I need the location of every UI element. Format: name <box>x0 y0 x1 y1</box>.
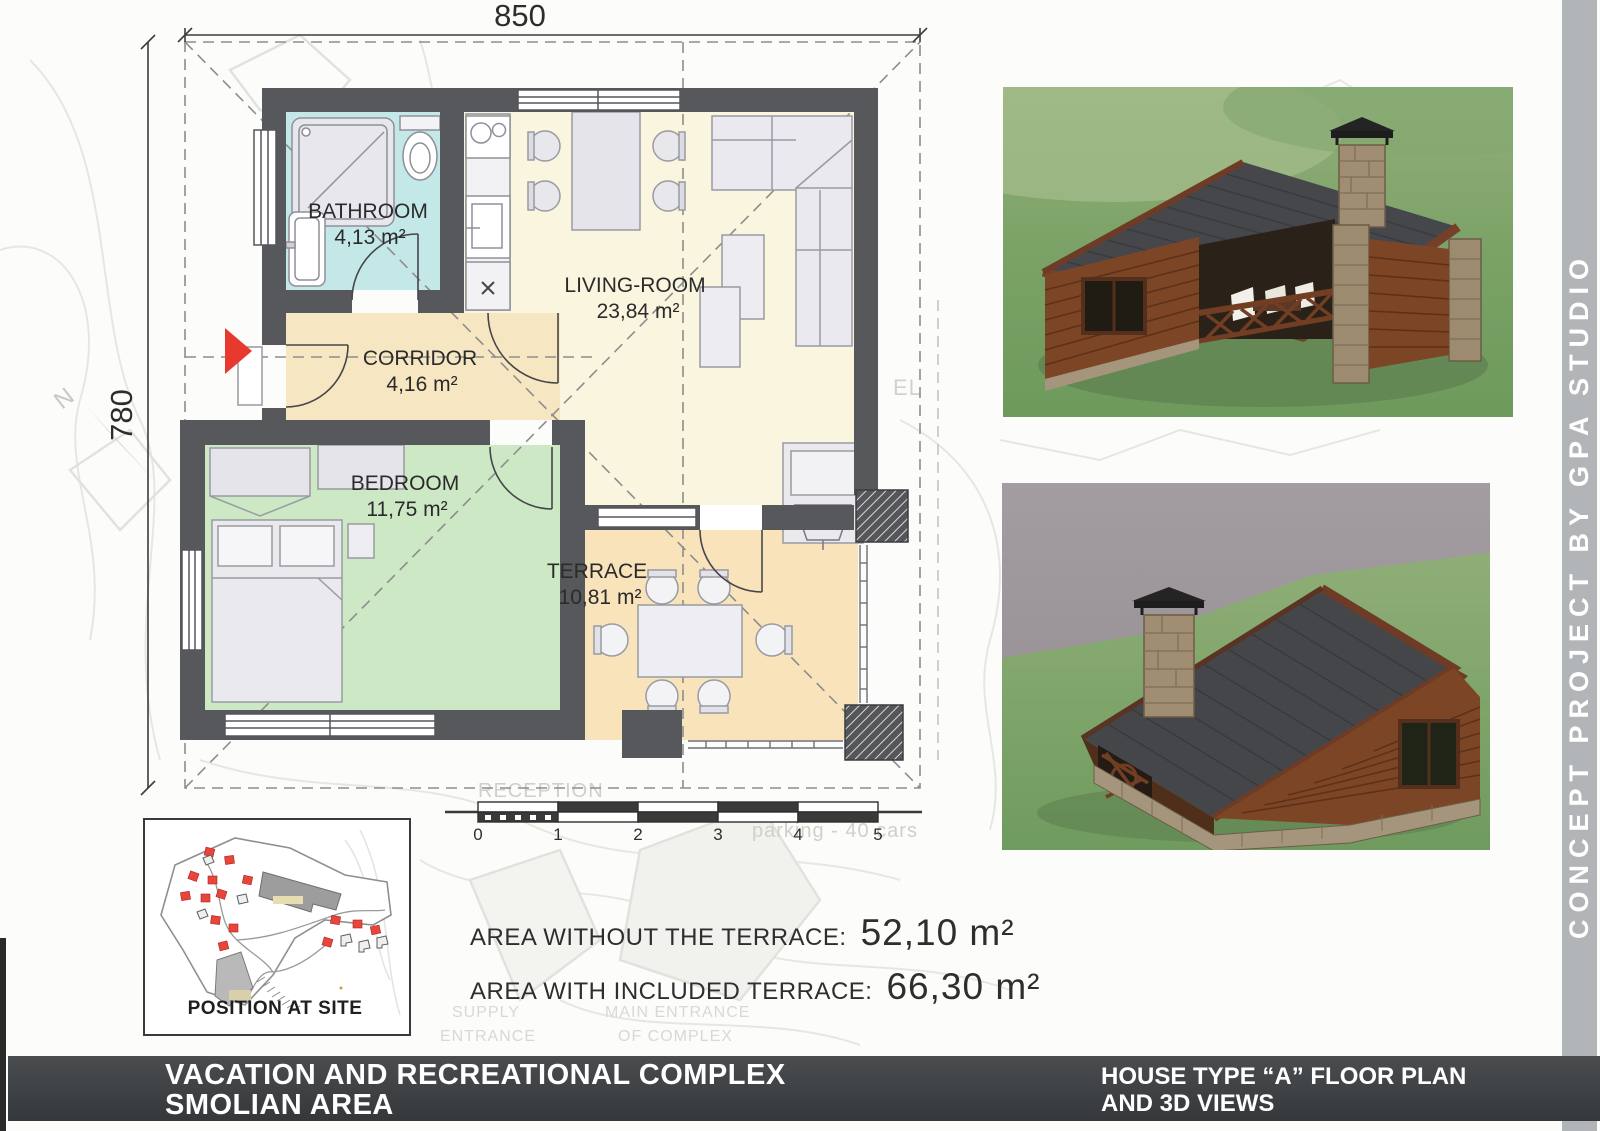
site-position-inset: POSITION AT SITE <box>143 818 411 1036</box>
side-strip: CONCEPT PROJECT BY GPA STUDIO <box>1562 0 1597 1131</box>
dimension-top-label: 850 <box>494 0 546 33</box>
living-room-window-top <box>518 90 680 110</box>
render1-chimney <box>1329 117 1395 227</box>
terrace-window <box>598 508 696 527</box>
watermark-supply-2: ENTRANCE <box>440 1028 536 1046</box>
corridor-area: 4,16 m² <box>386 373 457 396</box>
area-with-terrace-value: 66,30 m² <box>886 966 1040 1008</box>
bedroom-window-left <box>182 550 202 650</box>
scale-bar: 0 1 2 3 4 5 <box>430 790 940 845</box>
terrace-table <box>638 605 742 677</box>
bedside-table <box>348 524 374 558</box>
kitchen-cabinet <box>466 262 510 310</box>
footer-project-title-line1: VACATION AND RECREATIONAL COMPLEX <box>165 1060 786 1090</box>
side-strip-text: CONCEPT PROJECT BY GPA STUDIO <box>1562 130 1597 1060</box>
render-3d-front-view <box>1003 87 1513 417</box>
corridor-label: CORRIDOR <box>363 347 477 370</box>
stove <box>466 116 510 158</box>
scale-bar-ticks: 0 1 2 3 4 5 <box>473 825 882 844</box>
area-without-terrace-label: AREA WITHOUT THE TERRACE: <box>470 924 847 952</box>
dimension-left-label: 780 <box>104 389 139 441</box>
svg-text:0: 0 <box>473 825 482 844</box>
terrace-label: TERRACE <box>547 560 647 583</box>
terrace-area: 10,81 m² <box>559 586 642 609</box>
floor-plan: 850 780 BATHROOM 4,13 m² CORRIDOR 4,16 m… <box>0 0 960 800</box>
toilet <box>400 116 440 180</box>
kitchen-sink <box>466 196 510 258</box>
svg-text:2: 2 <box>633 825 642 844</box>
footer-sheet-title-line2: AND 3D VIEWS <box>1101 1090 1466 1117</box>
bedroom-window-bottom <box>225 714 435 736</box>
svg-text:1: 1 <box>553 825 562 844</box>
terrace-door-opening <box>700 505 762 530</box>
svg-text:4: 4 <box>793 825 802 844</box>
fireplace <box>783 443 863 550</box>
bathroom-window <box>254 130 276 245</box>
footer-sheet-title-line1: HOUSE TYPE “A” FLOOR PLAN <box>1101 1063 1466 1090</box>
footer-title-bar: VACATION AND RECREATIONAL COMPLEX SMOLIA… <box>8 1056 1600 1121</box>
living-room-area: 23,84 m² <box>597 300 680 323</box>
area-without-terrace: AREA WITHOUT THE TERRACE: 52,10 m² <box>470 912 1015 954</box>
living-room-label: LIVING-ROOM <box>564 274 705 297</box>
footer-project-title-line2: SMOLIAN AREA <box>165 1090 786 1120</box>
svg-text:5: 5 <box>873 825 882 844</box>
kitchen-counter <box>466 114 510 310</box>
watermark-main-entrance-2: OF COMPLEX <box>618 1028 733 1046</box>
svg-text:3: 3 <box>713 825 722 844</box>
area-without-terrace-value: 52,10 m² <box>861 912 1015 954</box>
render-3d-rear-view <box>1002 483 1490 850</box>
scan-edge-artifact <box>0 938 6 1131</box>
washbasin <box>286 212 325 286</box>
bathroom-label: BATHROOM <box>308 200 428 223</box>
site-inset-caption: POSITION AT SITE <box>145 998 405 1020</box>
bathroom-area: 4,13 m² <box>334 226 405 249</box>
dining-table <box>572 112 640 230</box>
bedroom-area: 11,75 m² <box>366 498 447 521</box>
area-with-terrace: AREA WITH INCLUDED TERRACE: 66,30 m² <box>470 966 1040 1008</box>
bedroom-label: BEDROOM <box>351 472 460 495</box>
bed <box>212 520 342 702</box>
area-with-terrace-label: AREA WITH INCLUDED TERRACE: <box>470 978 872 1006</box>
